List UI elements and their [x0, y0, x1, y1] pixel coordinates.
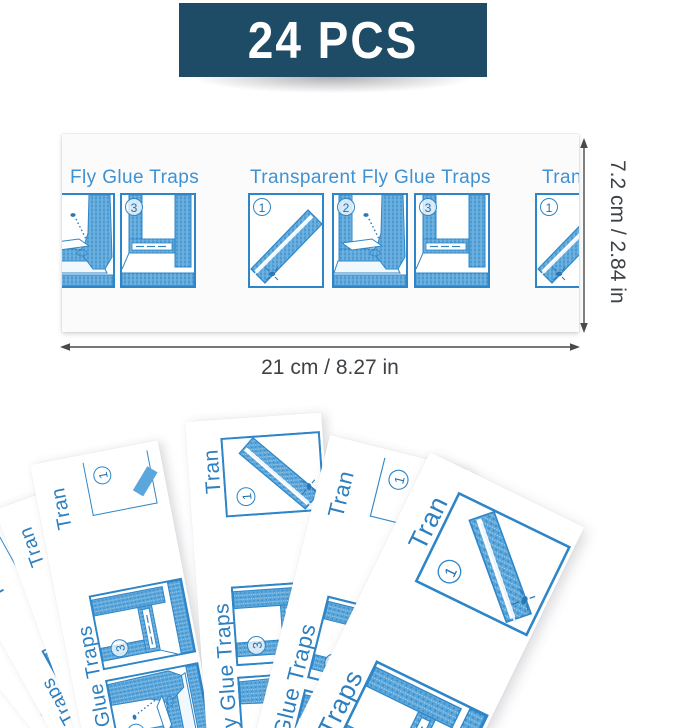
peel-step-diagram [220, 431, 325, 518]
sheet-title-partial: Tran [324, 468, 360, 520]
product-image: 24 PCS 21 cm / 8.27 in 7.2 cm / 2.84 in … [0, 0, 679, 728]
height-dimension-label: 7.2 cm / 2.84 in [605, 160, 629, 340]
strip-title-left: Fly Glue Traps [70, 167, 199, 189]
step-number: 1 [253, 198, 271, 216]
trap-band-icon [133, 466, 158, 496]
sheet-title-partial: Tran [0, 557, 11, 603]
height-dimension-line [580, 138, 588, 333]
quantity-label: 24 PCS [248, 10, 419, 70]
step-number: 3 [125, 198, 143, 216]
quantity-banner: 24 PCS [179, 3, 487, 77]
strip-title-center: Transparent Fly Glue Traps [250, 167, 491, 189]
step-number: 1 [92, 465, 113, 486]
sheet-title-partial: Tran [47, 485, 78, 531]
apply-step-diagram [62, 193, 115, 288]
step-number: 1 [386, 468, 410, 492]
apply-step-diagram [105, 662, 213, 728]
installed-step-diagram [89, 578, 197, 671]
width-dimension-line [60, 343, 580, 351]
step-number: 3 [419, 198, 437, 216]
step-number: 2 [337, 198, 355, 216]
step-number: 1 [540, 198, 558, 216]
width-dimension-label: 21 cm / 8.27 in [170, 356, 490, 380]
strip-title-right: Tran [542, 167, 579, 189]
package-strip: Fly Glue Traps Transparent Fly Glue Trap… [62, 134, 579, 332]
peel-panel-clipped: 1 [83, 450, 158, 516]
